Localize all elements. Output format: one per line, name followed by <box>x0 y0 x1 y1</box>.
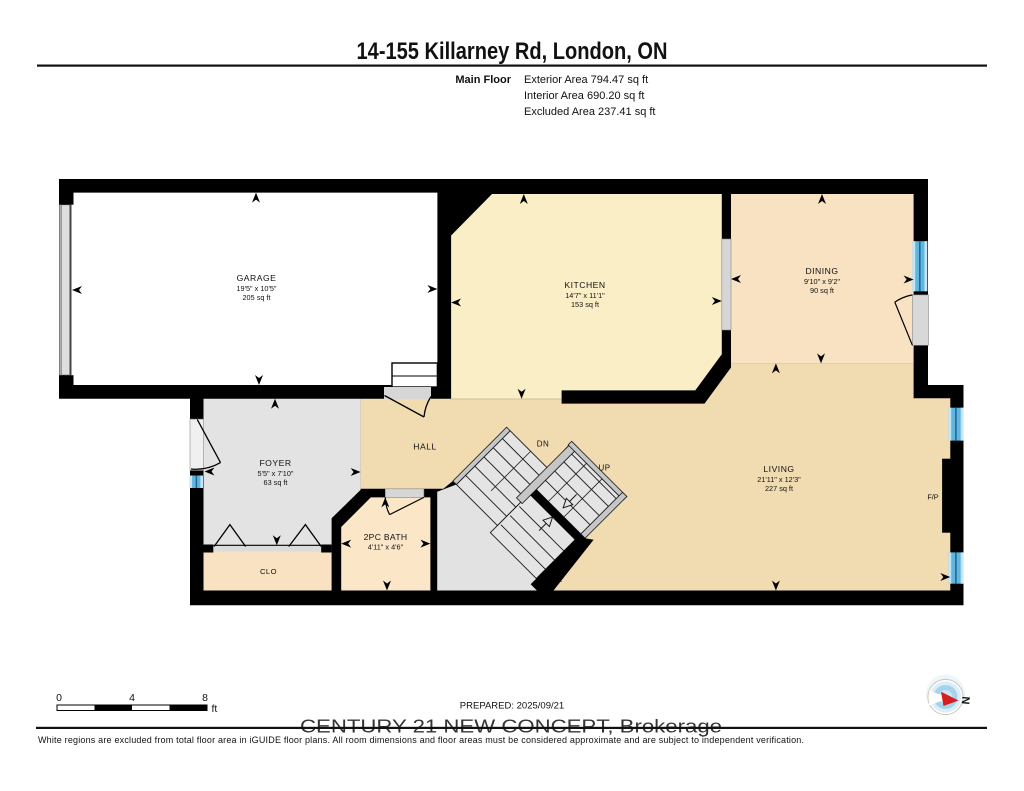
svg-text:N: N <box>959 696 972 705</box>
svg-text:227 sq ft: 227 sq ft <box>765 484 793 493</box>
svg-text:19'5" x 10'5": 19'5" x 10'5" <box>236 284 276 293</box>
svg-text:White regions are excluded fro: White regions are excluded from total fl… <box>38 735 804 745</box>
svg-text:PREPARED: 2025/09/21: PREPARED: 2025/09/21 <box>460 701 564 712</box>
svg-text:ft: ft <box>212 703 218 715</box>
svg-text:F/P: F/P <box>927 493 938 502</box>
svg-text:Main Floor: Main Floor <box>455 74 511 86</box>
svg-text:Exterior Area 794.47 sq ft: Exterior Area 794.47 sq ft <box>524 74 648 86</box>
svg-text:63 sq ft: 63 sq ft <box>264 478 288 487</box>
svg-text:Excluded Area 237.41 sq ft: Excluded Area 237.41 sq ft <box>524 106 655 118</box>
svg-text:205 sq ft: 205 sq ft <box>243 293 271 302</box>
svg-text:GARAGE: GARAGE <box>237 273 277 283</box>
svg-text:9'10" x 9'2": 9'10" x 9'2" <box>804 277 840 286</box>
svg-text:UP: UP <box>598 464 610 473</box>
svg-text:14-155 Killarney Rd, London, O: 14-155 Killarney Rd, London, ON <box>357 38 668 65</box>
svg-text:DINING: DINING <box>805 266 838 276</box>
svg-text:KITCHEN: KITCHEN <box>564 280 605 290</box>
svg-text:8: 8 <box>202 692 208 704</box>
svg-text:HALL: HALL <box>413 442 437 452</box>
svg-text:14'7" x 11'1": 14'7" x 11'1" <box>565 291 605 300</box>
svg-text:CLO: CLO <box>260 567 277 576</box>
svg-text:153 sq ft: 153 sq ft <box>571 300 599 309</box>
svg-text:0: 0 <box>56 692 62 704</box>
svg-text:FOYER: FOYER <box>259 458 291 468</box>
svg-text:4'11" x 4'6": 4'11" x 4'6" <box>368 543 404 552</box>
svg-text:90 sq ft: 90 sq ft <box>810 286 834 295</box>
svg-text:21'11" x 12'3": 21'11" x 12'3" <box>757 475 801 484</box>
svg-text:5'5" x 7'10": 5'5" x 7'10" <box>258 469 294 478</box>
svg-text:4: 4 <box>129 692 135 704</box>
svg-text:Interior Area 690.20 sq ft: Interior Area 690.20 sq ft <box>524 90 644 102</box>
svg-text:2PC BATH: 2PC BATH <box>364 532 408 542</box>
svg-text:LIVING: LIVING <box>763 464 794 474</box>
svg-text:CENTURY 21 NEW CONCEPT, Broker: CENTURY 21 NEW CONCEPT, Brokerage <box>300 716 722 737</box>
svg-text:DN: DN <box>537 440 550 449</box>
